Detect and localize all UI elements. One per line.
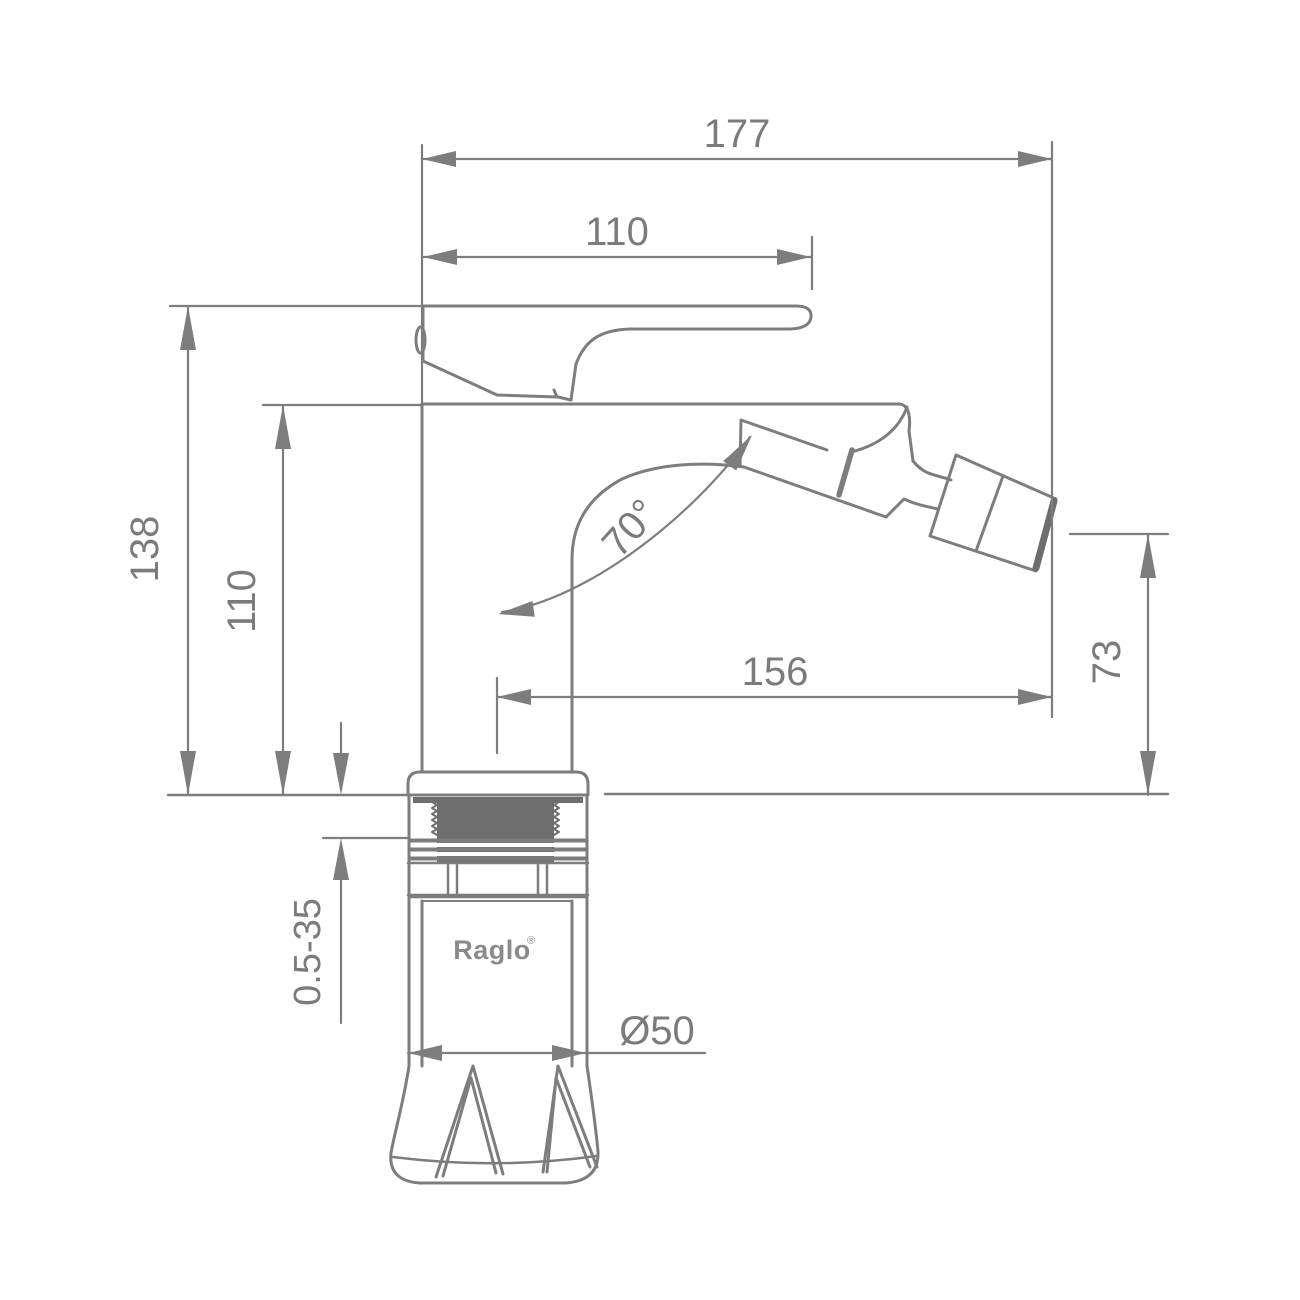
handle-pivot-icon [416,327,425,353]
brand-registered-mark: ® [527,935,535,947]
brand-name-label: Raglo [453,935,531,965]
nozzle-collar-edge [839,450,852,495]
dim-handle-length: 110 [423,210,811,265]
nozzle-tip [740,420,827,466]
aerator-divider [976,476,1003,551]
dim-spray-height: 73 [1085,534,1156,795]
dim-base-diameter-label: Ø50 [619,1009,695,1053]
base-skirt [391,1066,598,1183]
dim-mounting-thickness: 0.5-35 [287,723,349,1023]
dim-mounting-thickness-label: 0.5-35 [287,898,329,1006]
extension-lines [170,142,1168,838]
dim-spout-reach: 156 [497,650,1052,705]
thread-section [437,797,554,838]
hose-cone-left [436,1066,503,1177]
spray-nozzle [740,420,1056,571]
dim-base-diameter: Ø50 [408,1009,705,1061]
nozzle-neck [886,461,951,517]
dim-spray-height-label: 73 [1085,640,1129,685]
dim-body-height: 110 [220,405,291,795]
dim-spout-reach-label: 156 [742,650,809,694]
dim-handle-length-label: 110 [585,210,649,254]
drawing-sheet: Raglo ® 177 110 [0,0,1300,1300]
faucet-dimension-drawing: Raglo ® 177 110 [0,0,1300,1300]
dim-overall-height: 138 [123,306,196,795]
dim-spray-angle: 70° [498,435,752,617]
dim-spray-angle-label: 70° [594,491,667,565]
dim-overall-width: 177 [422,112,1052,167]
dim-overall-height-label: 138 [123,516,167,583]
dimension-annotations: 177 110 138 110 156 [123,112,1168,1061]
brand-logo: Raglo ® [453,935,535,965]
mounting-hardware [408,795,588,1066]
dim-body-height-label: 110 [220,569,264,633]
dim-overall-width-label: 177 [704,112,771,156]
handle-lever [416,306,811,400]
deck-line [168,794,1168,795]
faucet-body [422,404,913,772]
base-flange [408,772,588,795]
